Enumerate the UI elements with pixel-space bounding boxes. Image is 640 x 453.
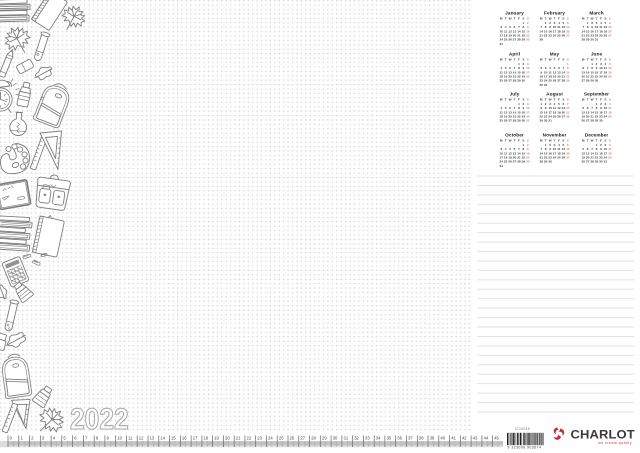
svg-text:9 323006 903674: 9 323006 903674 — [508, 446, 542, 450]
svg-text:7: 7 — [85, 436, 88, 441]
svg-text:19: 19 — [214, 436, 219, 441]
svg-text:13: 13 — [150, 436, 155, 441]
svg-text:6: 6 — [74, 436, 77, 441]
svg-text:29: 29 — [322, 436, 327, 441]
svg-text:42: 42 — [462, 436, 467, 441]
svg-text:18: 18 — [204, 436, 209, 441]
svg-text:20: 20 — [225, 436, 230, 441]
svg-text:24: 24 — [268, 436, 273, 441]
svg-text:17: 17 — [193, 436, 198, 441]
svg-text:37: 37 — [408, 436, 413, 441]
svg-text:38: 38 — [419, 436, 424, 441]
svg-text:41: 41 — [451, 436, 456, 441]
svg-text:30: 30 — [333, 436, 338, 441]
svg-text:1: 1 — [20, 436, 23, 441]
svg-text:39: 39 — [430, 436, 435, 441]
svg-text:8: 8 — [96, 436, 99, 441]
svg-text:33: 33 — [365, 436, 370, 441]
svg-text:11: 11 — [128, 436, 133, 441]
svg-text:3: 3 — [42, 436, 45, 441]
svg-text:4: 4 — [53, 436, 56, 441]
svg-text:45: 45 — [494, 436, 499, 441]
svg-text:40: 40 — [440, 436, 445, 441]
svg-text:25: 25 — [279, 436, 284, 441]
svg-text:34: 34 — [376, 436, 381, 441]
svg-text:32: 32 — [354, 436, 359, 441]
svg-text:31: 31 — [344, 436, 349, 441]
svg-text:16: 16 — [182, 436, 187, 441]
svg-text:26: 26 — [290, 436, 295, 441]
svg-text:43: 43 — [473, 436, 478, 441]
svg-text:9: 9 — [107, 436, 110, 441]
svg-text:23: 23 — [257, 436, 262, 441]
svg-text:27: 27 — [300, 436, 305, 441]
svg-text:36: 36 — [397, 436, 402, 441]
svg-text:44: 44 — [484, 436, 489, 441]
svg-text:22: 22 — [247, 436, 252, 441]
svg-text:12: 12 — [139, 436, 144, 441]
svg-text:21: 21 — [236, 436, 241, 441]
svg-text:28: 28 — [311, 436, 316, 441]
svg-text:10: 10 — [117, 436, 122, 441]
svg-text:14: 14 — [160, 436, 165, 441]
svg-text:35: 35 — [387, 436, 392, 441]
svg-text:0: 0 — [10, 436, 13, 441]
svg-text:5: 5 — [63, 436, 66, 441]
svg-text:15: 15 — [171, 436, 176, 441]
svg-text:2: 2 — [31, 436, 34, 441]
